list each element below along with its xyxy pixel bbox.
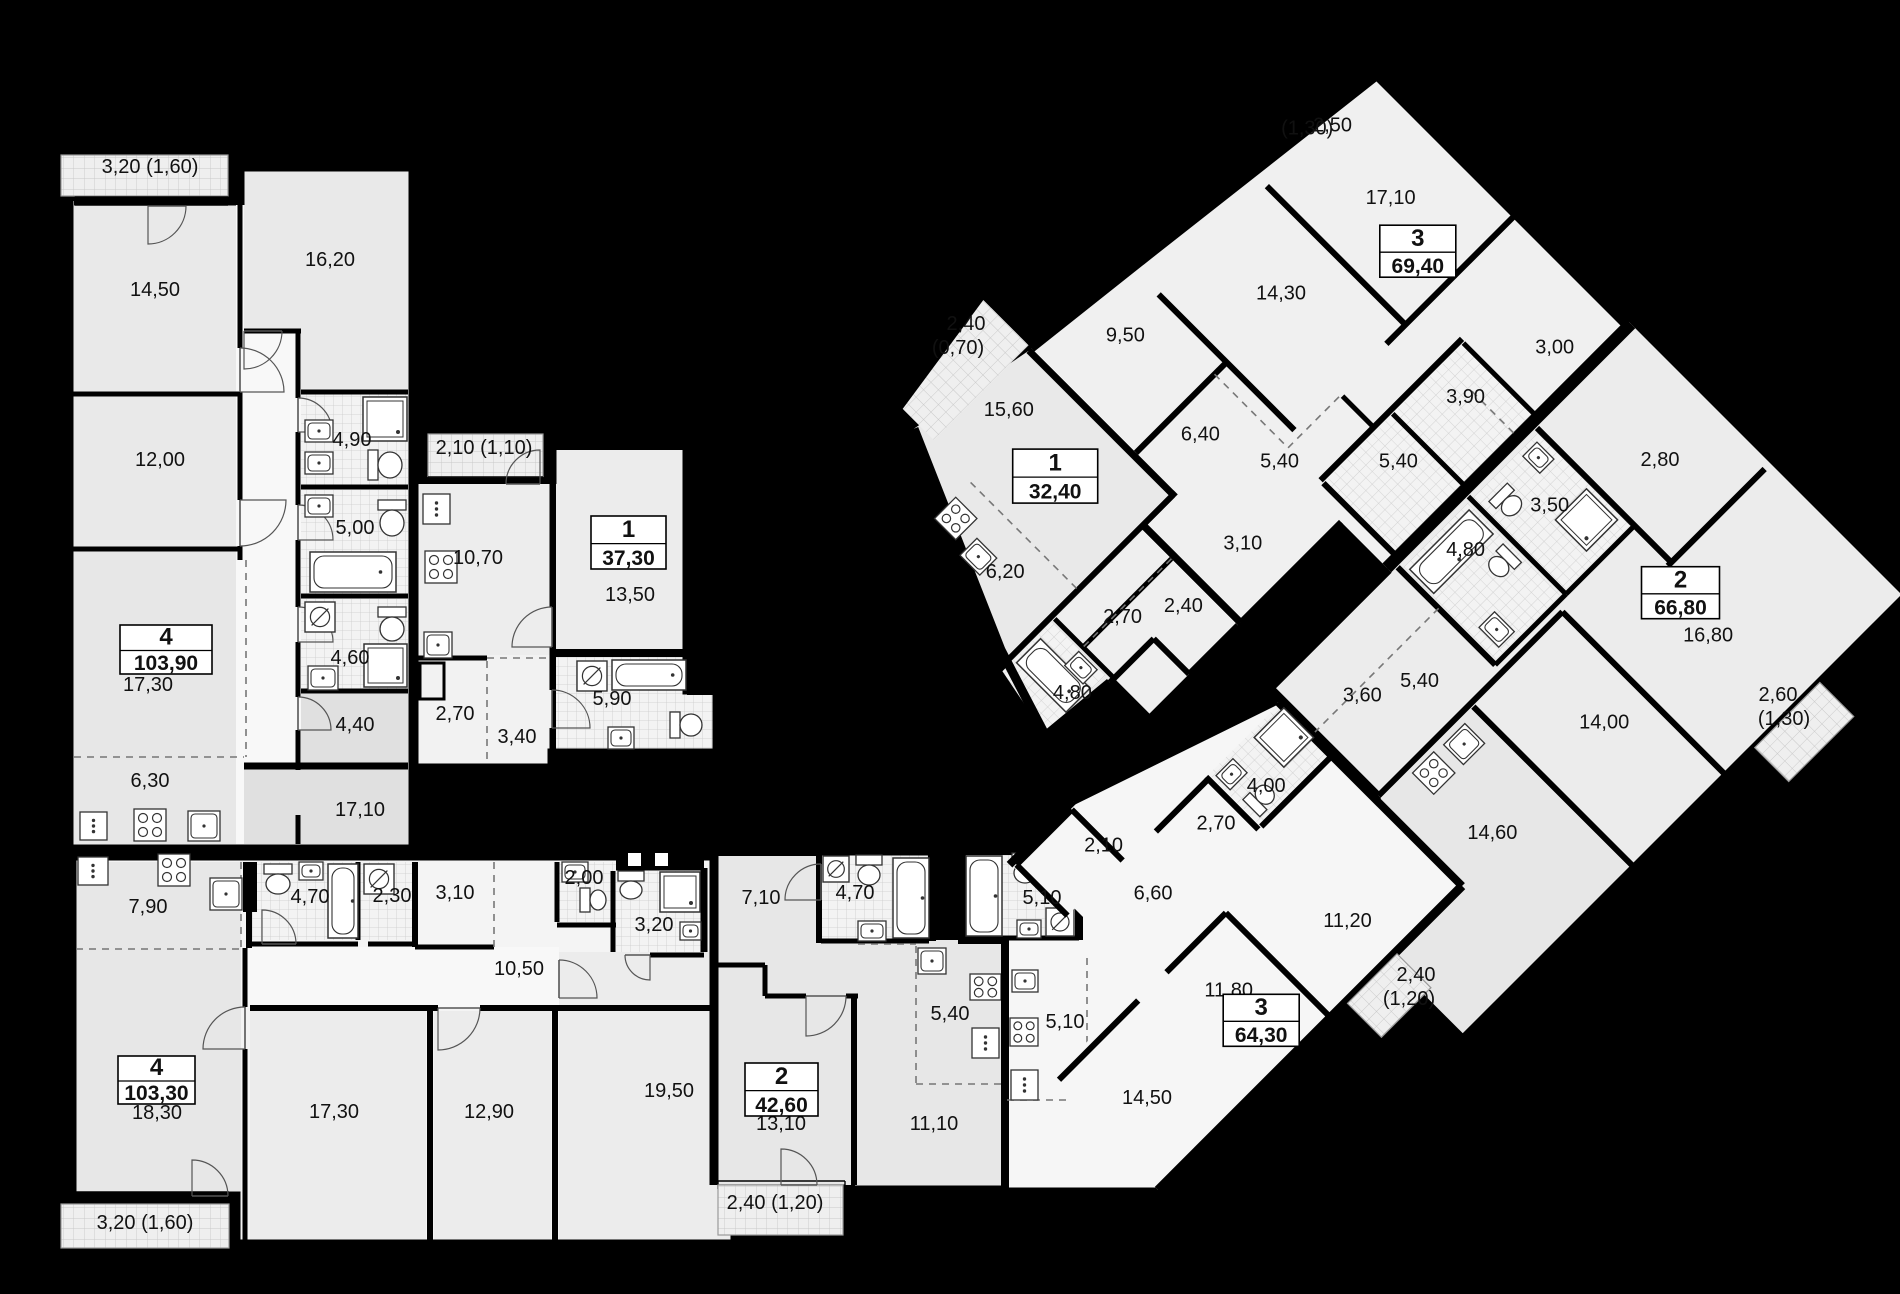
svg-text:3,20 (1,60): 3,20 (1,60) — [102, 156, 199, 178]
svg-text:32,40: 32,40 — [1029, 481, 1082, 504]
svg-text:(1,30): (1,30) — [1758, 708, 1810, 730]
svg-text:11,20: 11,20 — [1323, 910, 1372, 932]
svg-text:2,30: 2,30 — [373, 885, 412, 907]
svg-text:1: 1 — [1049, 450, 1062, 477]
svg-text:5,40: 5,40 — [1379, 451, 1418, 473]
svg-text:4,40: 4,40 — [336, 714, 375, 736]
svg-text:4,60: 4,60 — [331, 647, 370, 669]
svg-text:17,10: 17,10 — [335, 799, 385, 821]
svg-text:17,30: 17,30 — [309, 1101, 359, 1123]
svg-text:5,00: 5,00 — [336, 517, 375, 539]
svg-text:2,70: 2,70 — [436, 703, 475, 725]
svg-text:2,70: 2,70 — [1103, 606, 1142, 628]
svg-text:5,40: 5,40 — [1400, 670, 1439, 692]
svg-text:17,30: 17,30 — [123, 674, 173, 696]
svg-text:4: 4 — [159, 624, 173, 651]
svg-text:(1,20): (1,20) — [1383, 988, 1435, 1010]
svg-text:7,90: 7,90 — [129, 896, 168, 918]
svg-text:10,70: 10,70 — [453, 547, 503, 569]
svg-text:2: 2 — [775, 1063, 788, 1090]
svg-text:66,80: 66,80 — [1654, 597, 1707, 620]
svg-text:4,70: 4,70 — [836, 882, 875, 904]
svg-text:18,30: 18,30 — [132, 1102, 182, 1124]
svg-text:3: 3 — [1411, 225, 1424, 252]
svg-text:69,40: 69,40 — [1392, 255, 1445, 278]
svg-text:10,50: 10,50 — [494, 958, 544, 980]
svg-text:42,60: 42,60 — [755, 1094, 808, 1117]
svg-text:2,70: 2,70 — [1197, 812, 1236, 834]
svg-text:103,30: 103,30 — [124, 1082, 188, 1105]
svg-text:2,10 (1,10): 2,10 (1,10) — [436, 437, 533, 459]
svg-text:16,80: 16,80 — [1683, 625, 1733, 647]
svg-text:2,40 (1,20): 2,40 (1,20) — [727, 1192, 824, 1214]
svg-text:2,00: 2,00 — [565, 867, 604, 889]
svg-text:5,10: 5,10 — [1023, 887, 1062, 909]
svg-text:19,50: 19,50 — [644, 1080, 694, 1102]
svg-text:14,50: 14,50 — [130, 279, 180, 301]
svg-text:2,40: 2,40 — [1397, 964, 1436, 986]
svg-text:(1,30): (1,30) — [1281, 118, 1333, 140]
svg-text:37,30: 37,30 — [602, 547, 655, 570]
svg-text:3,60: 3,60 — [1343, 685, 1382, 707]
svg-text:13,50: 13,50 — [605, 584, 655, 606]
svg-text:4,80: 4,80 — [1053, 682, 1092, 704]
svg-text:2,60: 2,60 — [1759, 684, 1798, 706]
svg-text:3,10: 3,10 — [436, 882, 475, 904]
svg-text:2,40: 2,40 — [1164, 595, 1203, 617]
svg-text:2,10: 2,10 — [1084, 834, 1123, 856]
svg-text:1: 1 — [622, 516, 635, 543]
svg-text:14,00: 14,00 — [1579, 712, 1629, 734]
svg-text:14,30: 14,30 — [1256, 282, 1306, 304]
svg-text:3,50: 3,50 — [1530, 494, 1569, 516]
svg-text:6,20: 6,20 — [986, 561, 1025, 583]
svg-text:12,90: 12,90 — [464, 1101, 514, 1123]
svg-text:4: 4 — [150, 1054, 164, 1081]
svg-text:3,10: 3,10 — [1223, 533, 1262, 555]
svg-text:6,40: 6,40 — [1181, 424, 1220, 446]
svg-text:4,70: 4,70 — [291, 886, 330, 908]
svg-text:2,40: 2,40 — [947, 313, 986, 335]
svg-text:15,60: 15,60 — [984, 399, 1034, 421]
svg-text:9,50: 9,50 — [1106, 325, 1145, 347]
svg-text:7,10: 7,10 — [742, 887, 781, 909]
svg-text:2,80: 2,80 — [1641, 449, 1680, 471]
svg-text:11,10: 11,10 — [910, 1113, 959, 1135]
svg-text:14,50: 14,50 — [1122, 1087, 1172, 1109]
svg-text:3,90: 3,90 — [1446, 386, 1485, 408]
svg-text:17,10: 17,10 — [1366, 187, 1416, 209]
svg-text:2: 2 — [1674, 567, 1687, 594]
svg-text:6,60: 6,60 — [1134, 882, 1173, 904]
svg-text:(0,70): (0,70) — [932, 337, 984, 359]
svg-text:5,10: 5,10 — [1046, 1011, 1085, 1033]
svg-text:4,00: 4,00 — [1247, 775, 1286, 797]
svg-text:16,20: 16,20 — [305, 249, 355, 271]
svg-text:12,00: 12,00 — [135, 449, 185, 471]
svg-text:3: 3 — [1255, 994, 1268, 1021]
svg-text:5,40: 5,40 — [931, 1003, 970, 1025]
svg-text:4,80: 4,80 — [1446, 539, 1485, 561]
svg-text:3,40: 3,40 — [498, 726, 537, 748]
svg-text:5,40: 5,40 — [1260, 451, 1299, 473]
svg-text:6,30: 6,30 — [131, 770, 170, 792]
svg-text:3,20 (1,60): 3,20 (1,60) — [97, 1212, 194, 1234]
svg-text:3,20: 3,20 — [635, 914, 674, 936]
svg-text:103,90: 103,90 — [134, 652, 198, 675]
svg-text:3,00: 3,00 — [1535, 337, 1574, 359]
svg-text:5,90: 5,90 — [593, 688, 632, 710]
svg-text:4,90: 4,90 — [333, 429, 372, 451]
svg-text:64,30: 64,30 — [1235, 1024, 1288, 1047]
svg-text:14,60: 14,60 — [1467, 822, 1517, 844]
